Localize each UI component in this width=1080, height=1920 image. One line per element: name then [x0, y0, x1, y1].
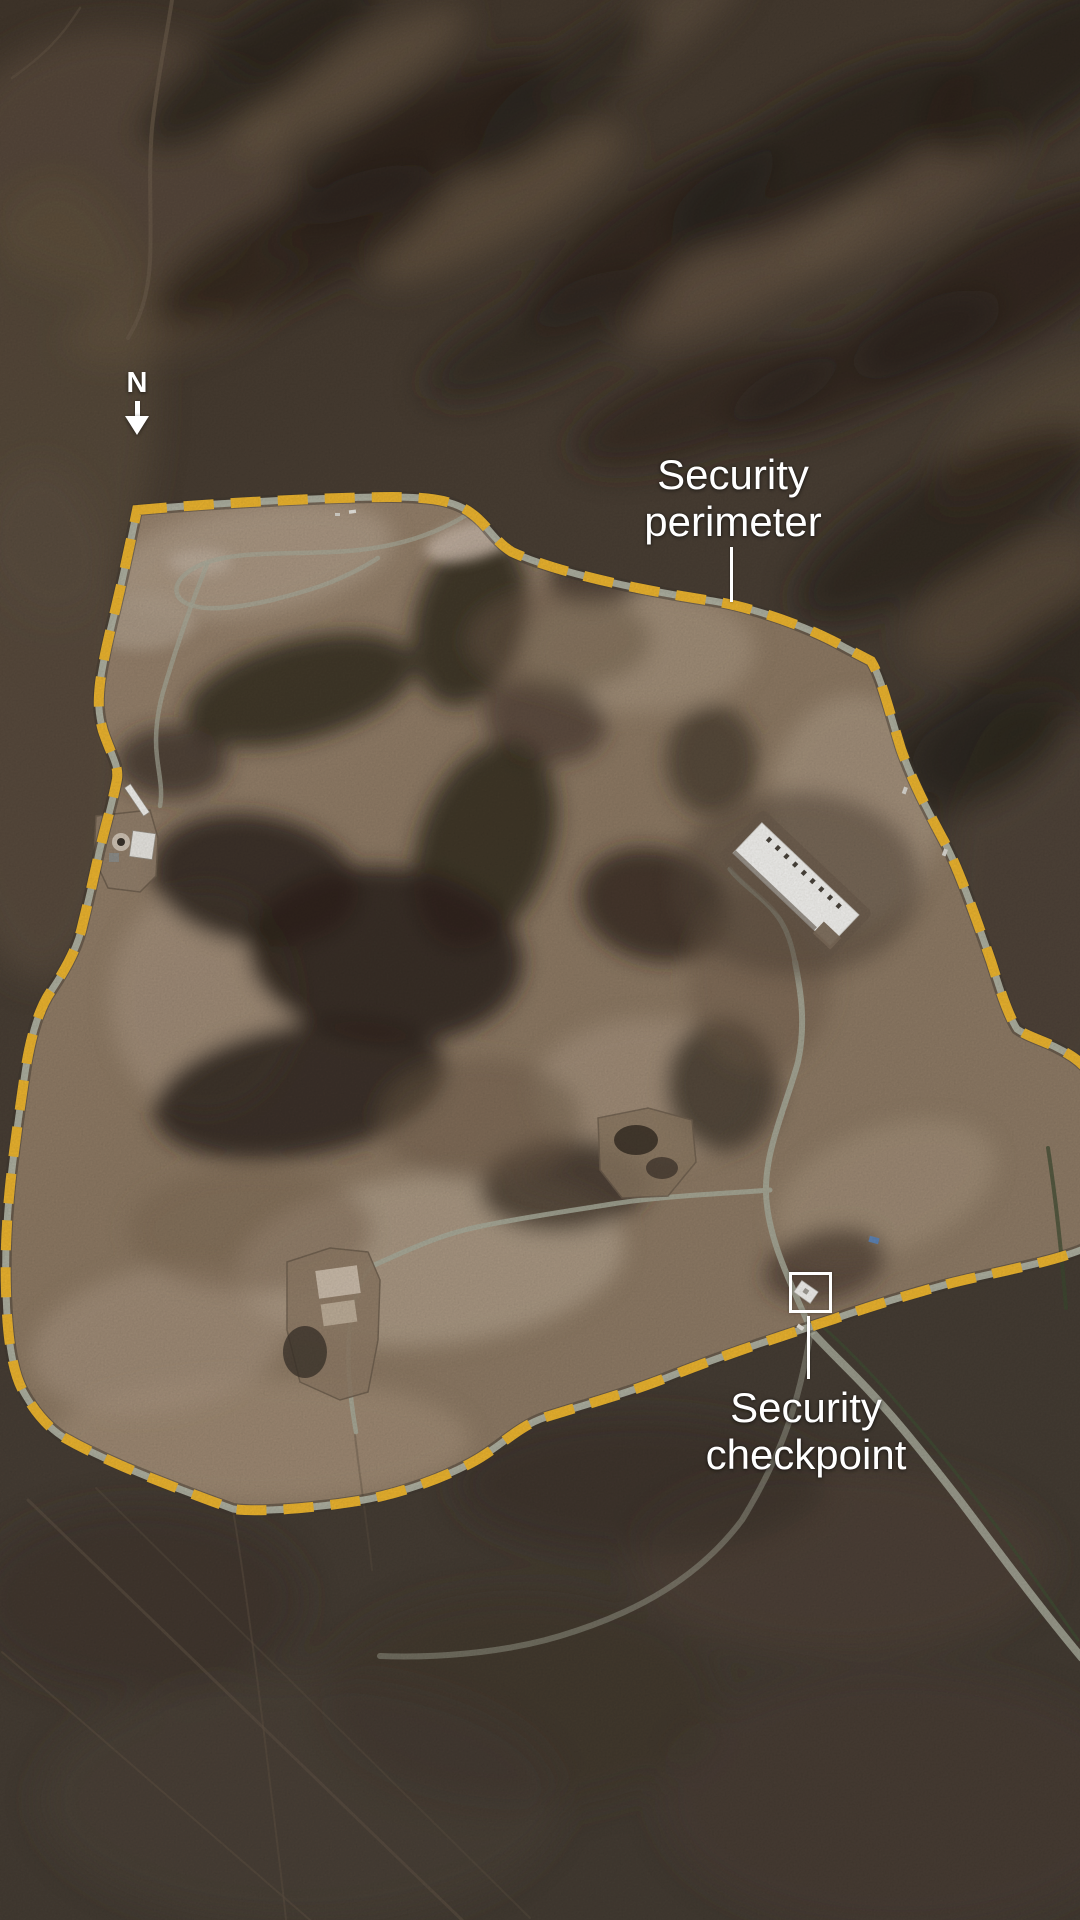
annotated-satellite-map: N Security perimeter Security checkpoint — [0, 0, 1080, 1920]
north-indicator: N — [107, 368, 167, 435]
security-perimeter-label-line1: Security — [657, 451, 809, 498]
north-arrow-down-icon — [125, 401, 149, 435]
security-checkpoint-label: Security checkpoint — [646, 1384, 966, 1478]
security-checkpoint-label-line2: checkpoint — [706, 1431, 907, 1478]
satellite-basemap — [0, 0, 1080, 1920]
security-perimeter-label-line2: perimeter — [644, 498, 821, 545]
security-perimeter-label: Security perimeter — [573, 451, 893, 545]
north-label: N — [107, 368, 167, 398]
security-perimeter-leader-line — [730, 547, 733, 602]
grain-texture — [0, 0, 1080, 1920]
checkpoint-highlight-box — [789, 1272, 832, 1313]
security-checkpoint-leader-line — [807, 1316, 810, 1379]
security-checkpoint-label-line1: Security — [730, 1384, 882, 1431]
